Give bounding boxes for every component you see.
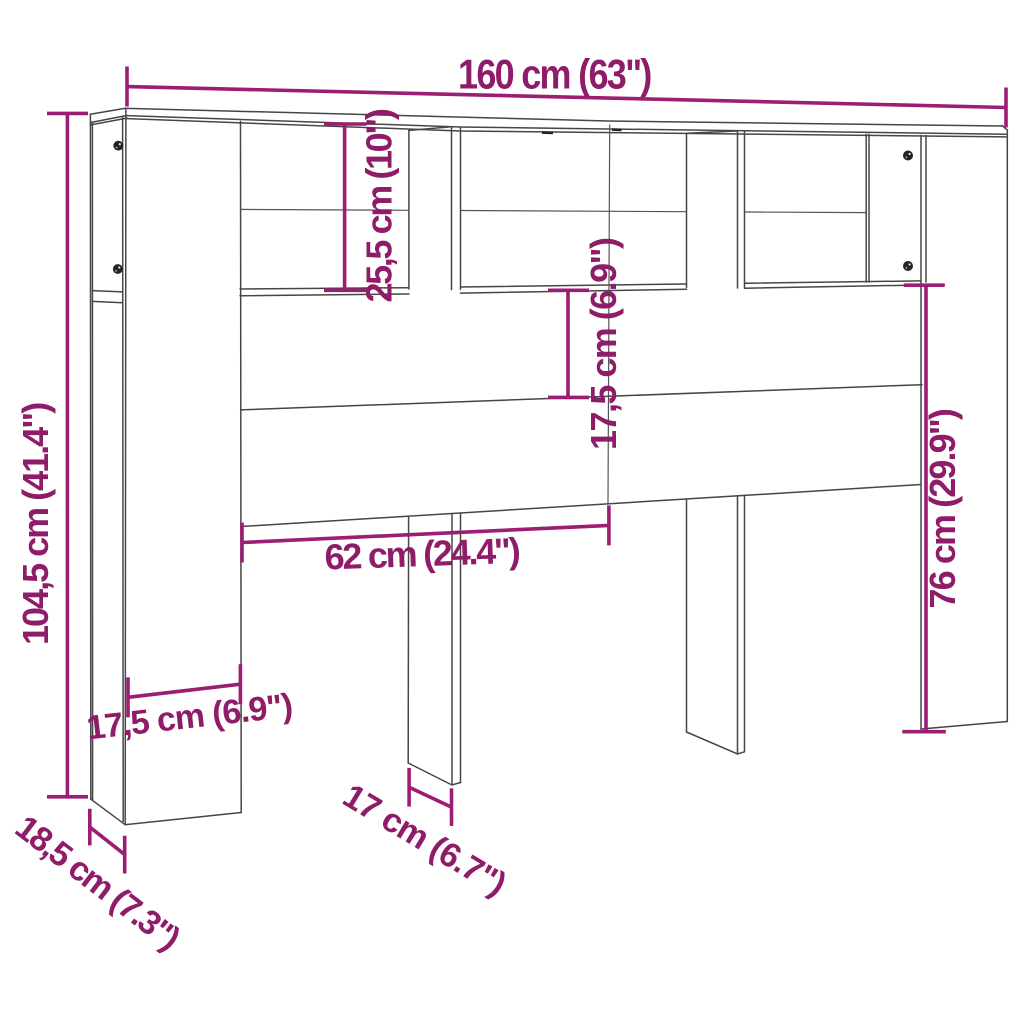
svg-text:160 cm (63"): 160 cm (63") [458, 52, 651, 98]
svg-text:104,5 cm (41.4"): 104,5 cm (41.4") [15, 403, 56, 645]
svg-text:76 cm (29.9"): 76 cm (29.9") [922, 409, 963, 608]
svg-text:17,5 cm (6.9"): 17,5 cm (6.9") [85, 687, 294, 748]
svg-text:17,5 cm (6.9"): 17,5 cm (6.9") [583, 238, 624, 450]
svg-text:18,5 cm (7.3"): 18,5 cm (7.3") [8, 808, 186, 957]
svg-text:25,5 cm (10"): 25,5 cm (10") [359, 109, 400, 302]
svg-text:62 cm (24.4"): 62 cm (24.4") [324, 530, 521, 578]
